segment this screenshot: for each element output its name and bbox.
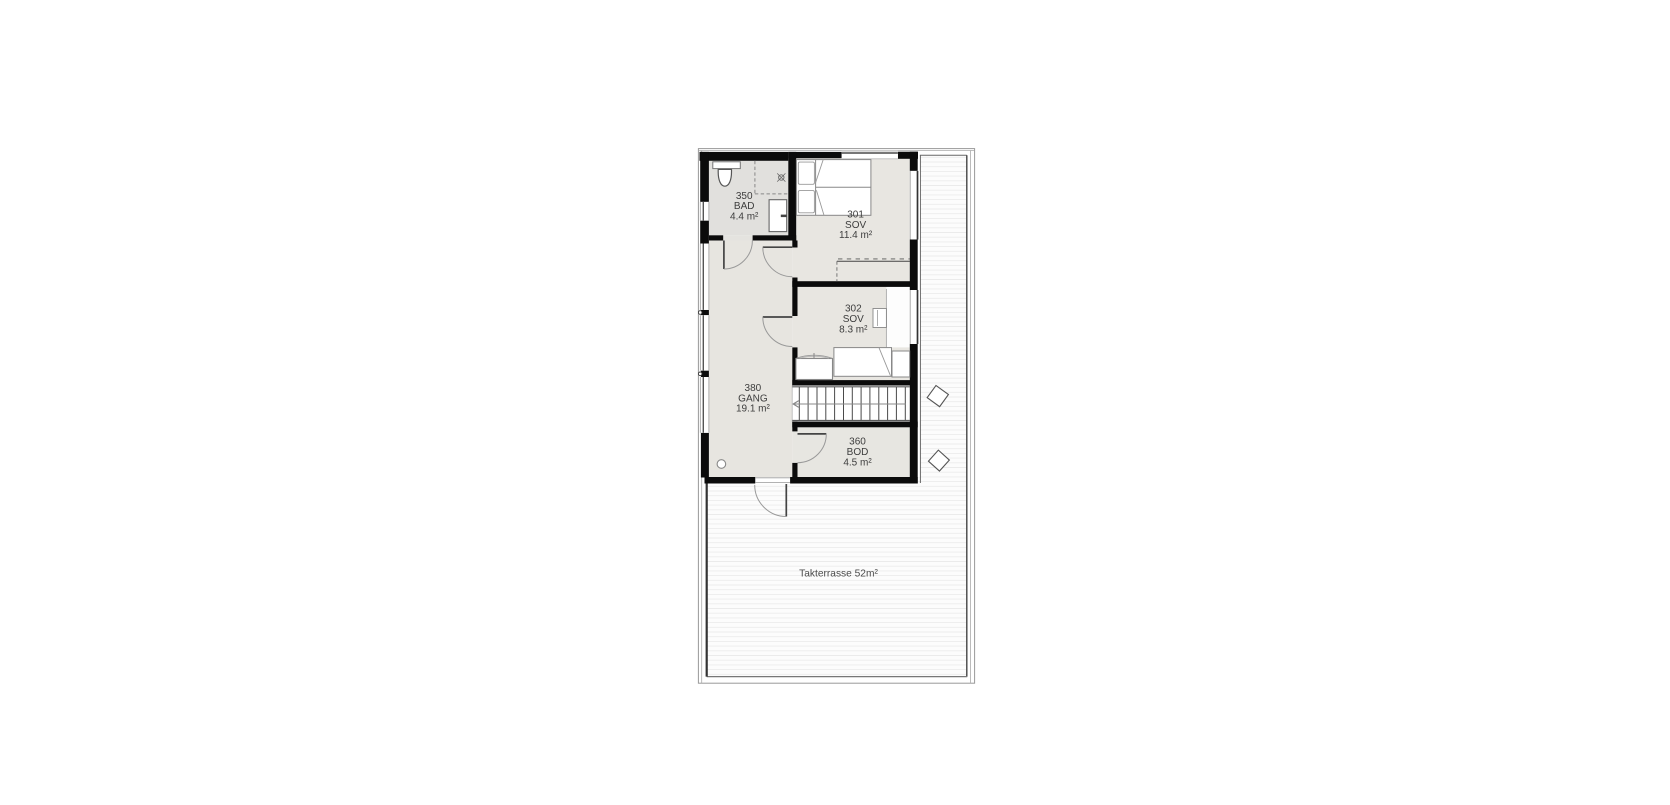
svg-text:4.4 m²: 4.4 m²: [730, 211, 759, 222]
svg-text:19.1 m²: 19.1 m²: [736, 404, 771, 415]
svg-text:8.3 m²: 8.3 m²: [839, 324, 868, 335]
svg-text:Takterrasse 52m²: Takterrasse 52m²: [799, 569, 878, 580]
svg-text:11.4 m²: 11.4 m²: [839, 230, 873, 241]
svg-text:4.5 m²: 4.5 m²: [843, 457, 872, 468]
